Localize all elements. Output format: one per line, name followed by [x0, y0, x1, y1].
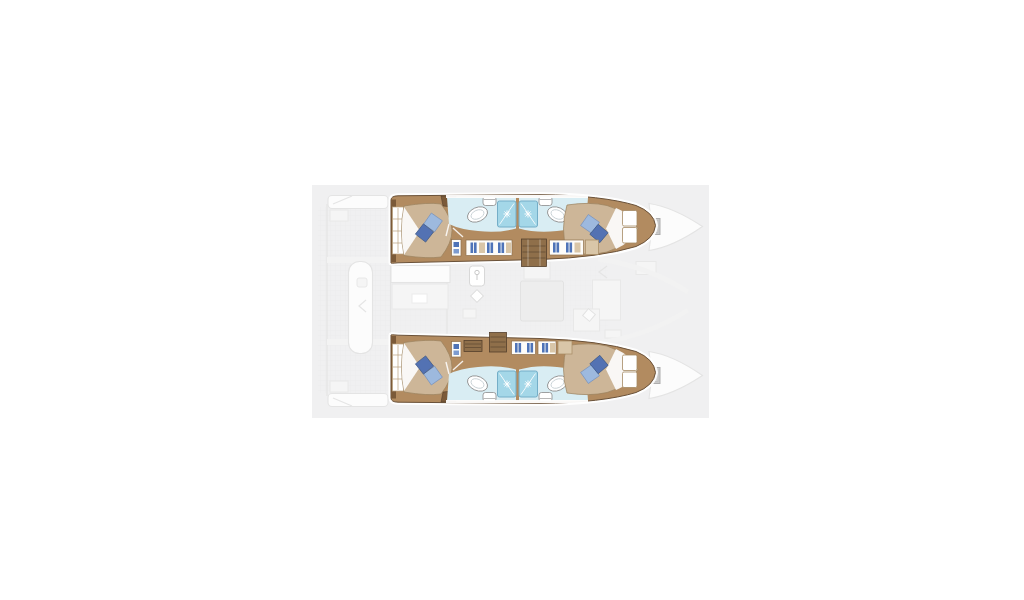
companionway-stairs-port [522, 239, 547, 267]
corridor-shelf [464, 341, 482, 352]
galley-counter [391, 266, 450, 283]
corridor-cabinet [558, 341, 572, 354]
floor-plan-svg [0, 0, 1024, 600]
aft-deck [318, 196, 390, 407]
wardrobe-locker [452, 240, 462, 257]
stern-step [330, 381, 348, 392]
page-background [0, 0, 1024, 600]
salon-table [521, 281, 564, 321]
stern-step [330, 210, 348, 221]
corridor-cabinet [586, 240, 599, 255]
